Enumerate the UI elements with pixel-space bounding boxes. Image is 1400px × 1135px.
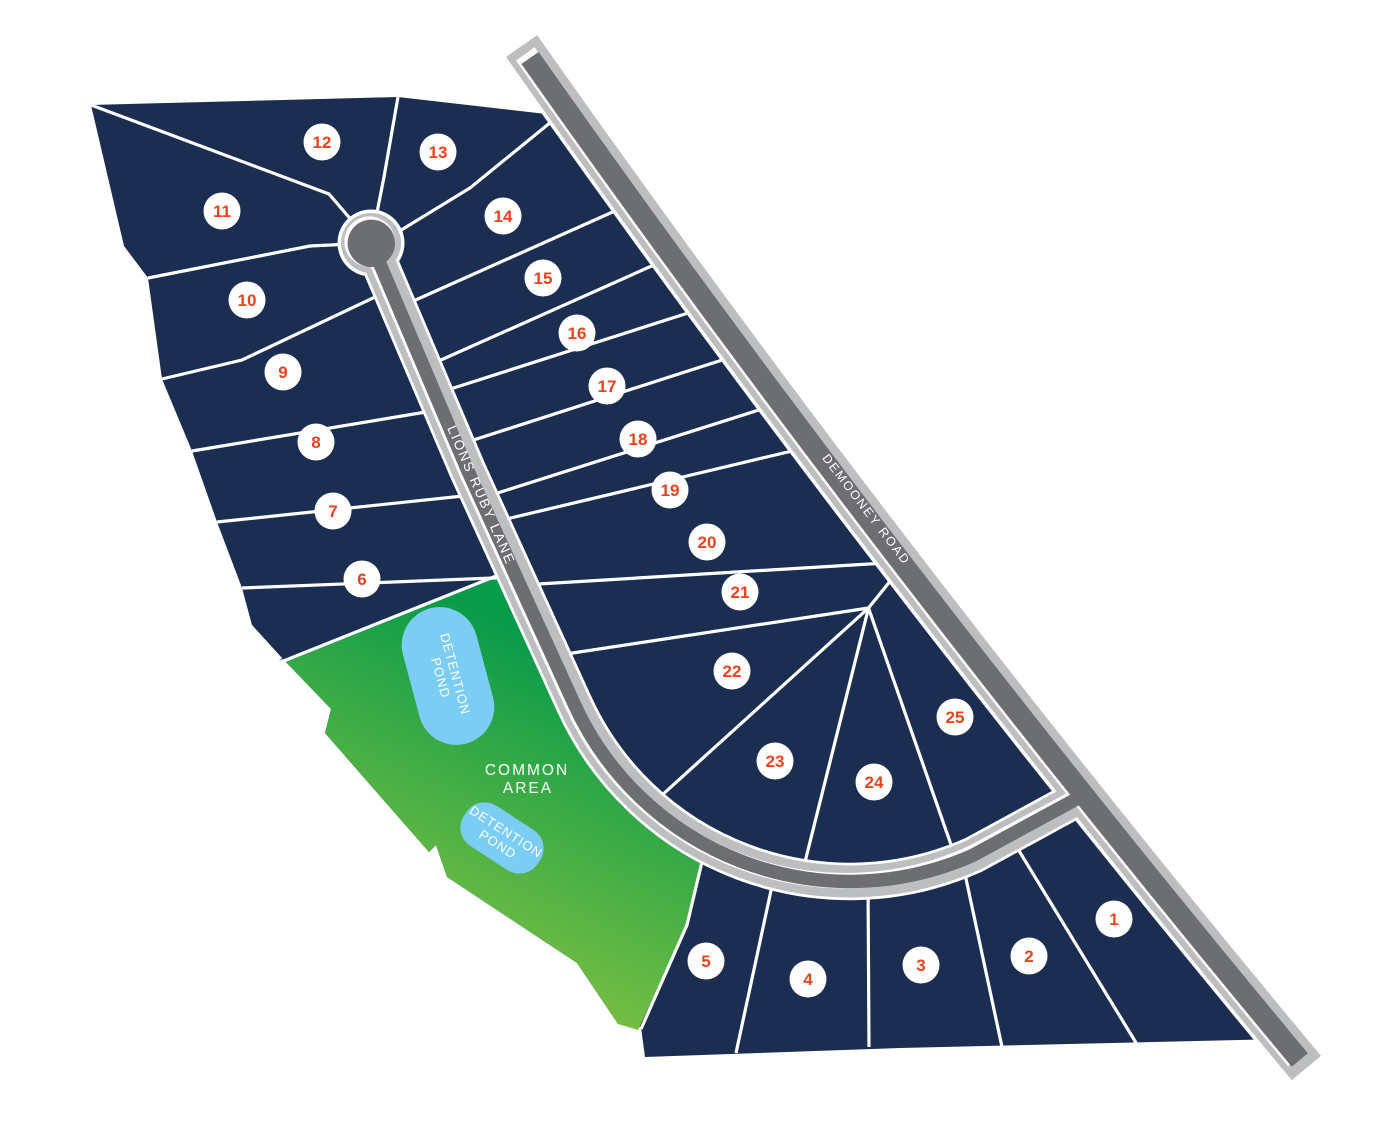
svg-text:AREA: AREA [503,780,553,797]
svg-text:10: 10 [238,291,257,310]
svg-text:18: 18 [629,430,648,449]
svg-text:8: 8 [311,433,320,452]
svg-text:17: 17 [598,377,617,396]
svg-text:23: 23 [766,752,785,771]
svg-text:6: 6 [357,570,366,589]
svg-text:21: 21 [731,583,750,602]
svg-text:9: 9 [278,363,287,382]
svg-text:14: 14 [494,207,513,226]
svg-text:2: 2 [1024,947,1033,966]
svg-text:3: 3 [916,956,925,975]
svg-text:24: 24 [865,773,884,792]
svg-text:11: 11 [213,202,231,221]
svg-text:COMMON: COMMON [485,762,569,779]
svg-text:25: 25 [946,708,965,727]
svg-text:5: 5 [701,952,710,971]
svg-text:4: 4 [803,970,813,989]
svg-text:1: 1 [1109,910,1118,929]
svg-text:22: 22 [723,662,742,681]
svg-text:12: 12 [313,133,332,152]
svg-text:13: 13 [429,143,448,162]
svg-text:7: 7 [328,502,337,521]
svg-text:16: 16 [568,324,587,343]
svg-text:19: 19 [661,481,680,500]
svg-text:20: 20 [698,533,717,552]
svg-text:15: 15 [534,269,553,288]
